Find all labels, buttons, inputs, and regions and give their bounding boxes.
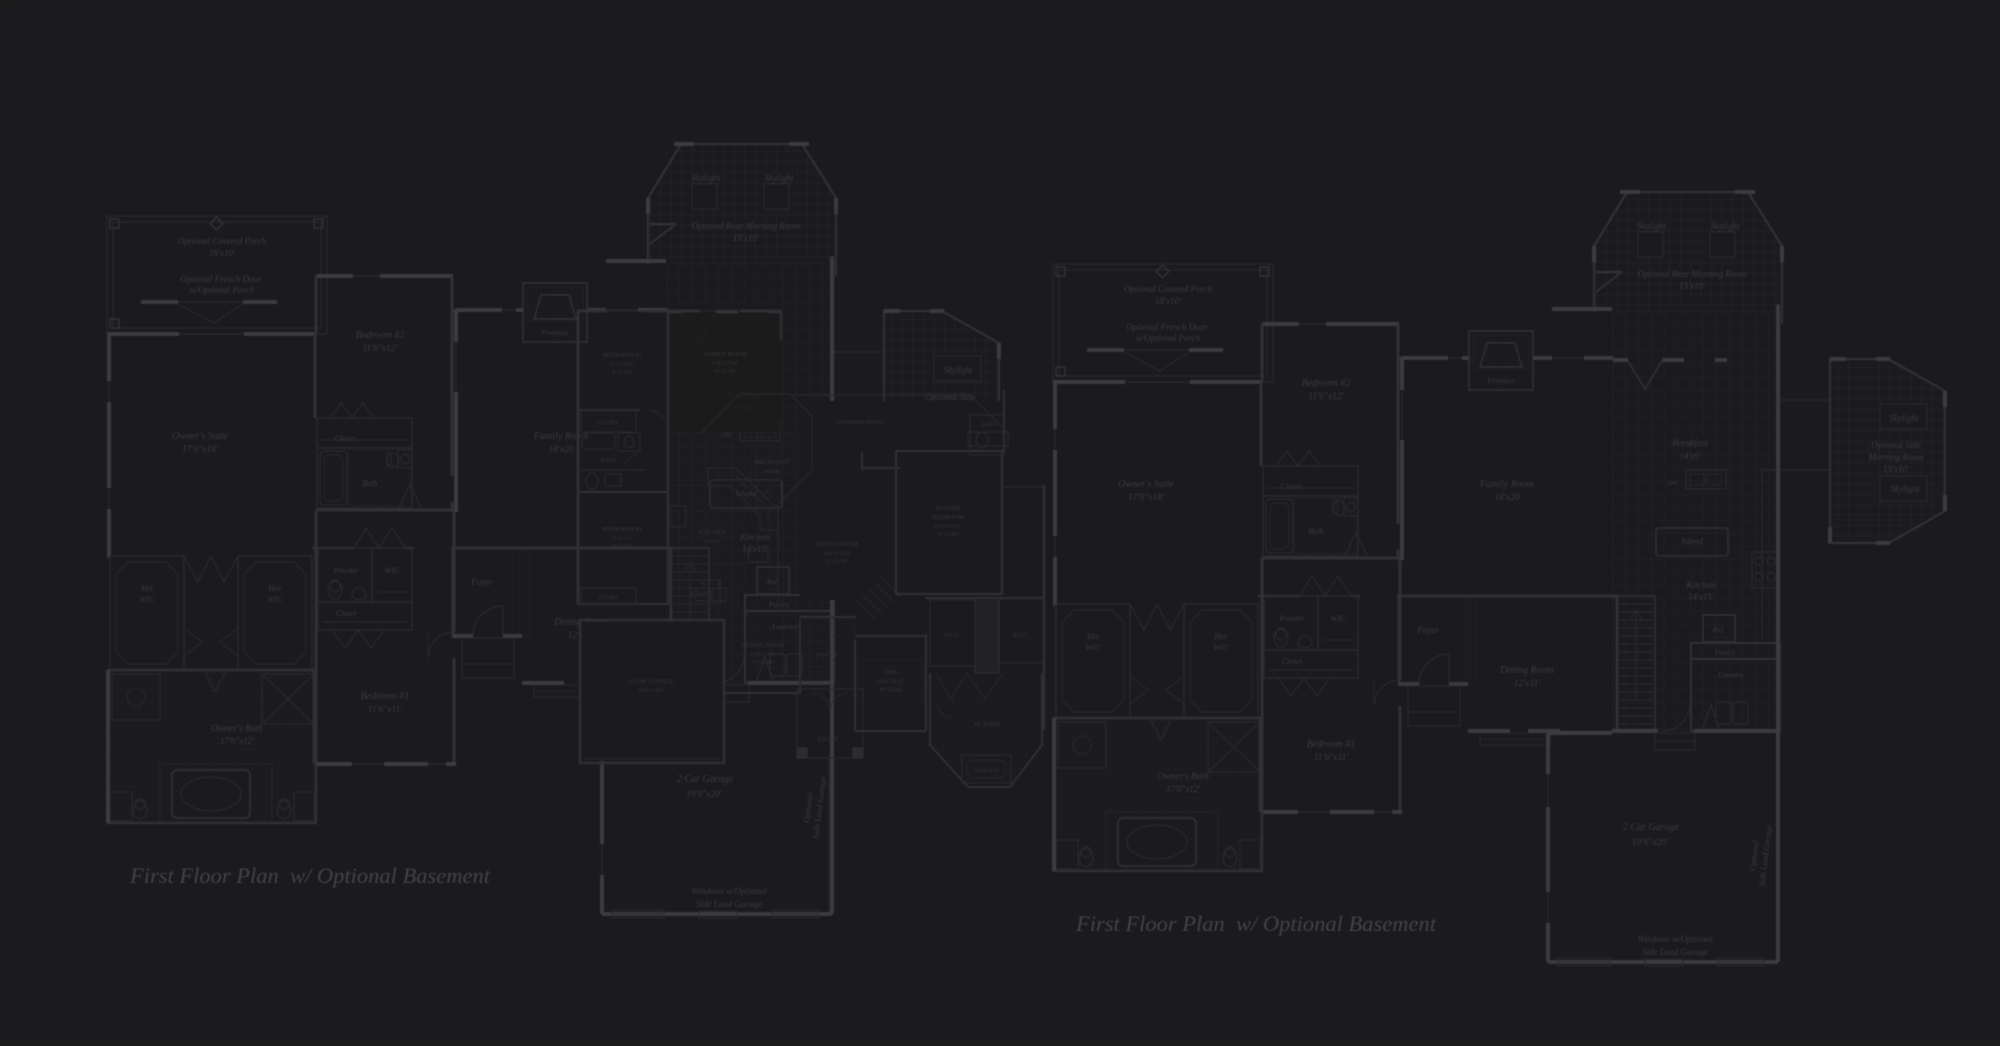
svg-text:KITCHEN: KITCHEN (698, 529, 726, 536)
svg-text:12'6″x15'10″: 12'6″x15'10″ (823, 551, 852, 557)
svg-text:DEN: DEN (885, 669, 898, 676)
svg-text:COVERED PATIO: COVERED PATIO (835, 419, 884, 426)
svg-text:9' CLNG: 9' CLNG (612, 544, 632, 550)
svg-text:D: D (717, 582, 721, 587)
svg-text:BATH: BATH (982, 422, 996, 428)
svg-text:DINING ROOM: DINING ROOM (742, 642, 785, 649)
svg-text:ENTRY: ENTRY (818, 736, 839, 743)
svg-text:FOYER: FOYER (817, 652, 838, 659)
svg-text:10' CLNG: 10' CLNG (714, 369, 737, 375)
svg-text:13'10″x17'2″: 13'10″x17'2″ (934, 524, 963, 530)
svg-text:12' CLNG: 12' CLNG (752, 660, 775, 666)
svg-text:11'x13': 11'x13' (704, 539, 720, 545)
svg-text:BREAKFAST: BREAKFAST (754, 459, 790, 466)
svg-text:W: W (701, 582, 706, 587)
svg-text:MASTER: MASTER (935, 505, 961, 512)
svg-text:CLOSET: CLOSET (598, 420, 619, 426)
svg-text:12' CLNG: 12' CLNG (826, 559, 849, 565)
svg-text:2 CAR GARAGE: 2 CAR GARAGE (628, 678, 674, 685)
svg-text:NOOK: NOOK (764, 469, 780, 475)
svg-text:BEDROOM: BEDROOM (932, 514, 964, 521)
svg-text:11'4″x11': 11'4″x11' (612, 536, 632, 542)
svg-text:FAMILY ROOM: FAMILY ROOM (703, 351, 747, 358)
svg-text:CLOSET: CLOSET (598, 595, 619, 601)
svg-text:BEDROOM #4: BEDROOM #4 (602, 526, 642, 533)
svg-text:W.I.C.: W.I.C. (944, 632, 961, 639)
svg-text:11'4″x12'6″: 11'4″x12'6″ (750, 652, 776, 658)
svg-text:W.I.C.: W.I.C. (1013, 632, 1030, 639)
svg-text:BATH: BATH (601, 458, 615, 464)
svg-text:WHIRLPOOL: WHIRLPOOL (974, 768, 1001, 773)
svg-text:10'11″x11'2″: 10'11″x11'2″ (877, 679, 905, 685)
svg-text:17'8″x17'10″: 17'8″x17'10″ (711, 361, 740, 367)
svg-text:LIVING ROOM: LIVING ROOM (816, 541, 859, 548)
svg-text:19'4″x19'8″: 19'4″x19'8″ (638, 688, 664, 694)
svg-text:10' CLNG: 10' CLNG (937, 532, 960, 538)
svg-text:M. BATH: M. BATH (974, 721, 1000, 728)
svg-text:10' CLNG: 10' CLNG (880, 687, 903, 693)
svg-text:11'4″x12'8″: 11'4″x12'8″ (609, 362, 635, 368)
svg-text:9' CLNG: 9' CLNG (612, 370, 632, 376)
svg-text:UTILITY: UTILITY (690, 591, 712, 597)
svg-text:BEDROOM #3: BEDROOM #3 (602, 352, 641, 359)
